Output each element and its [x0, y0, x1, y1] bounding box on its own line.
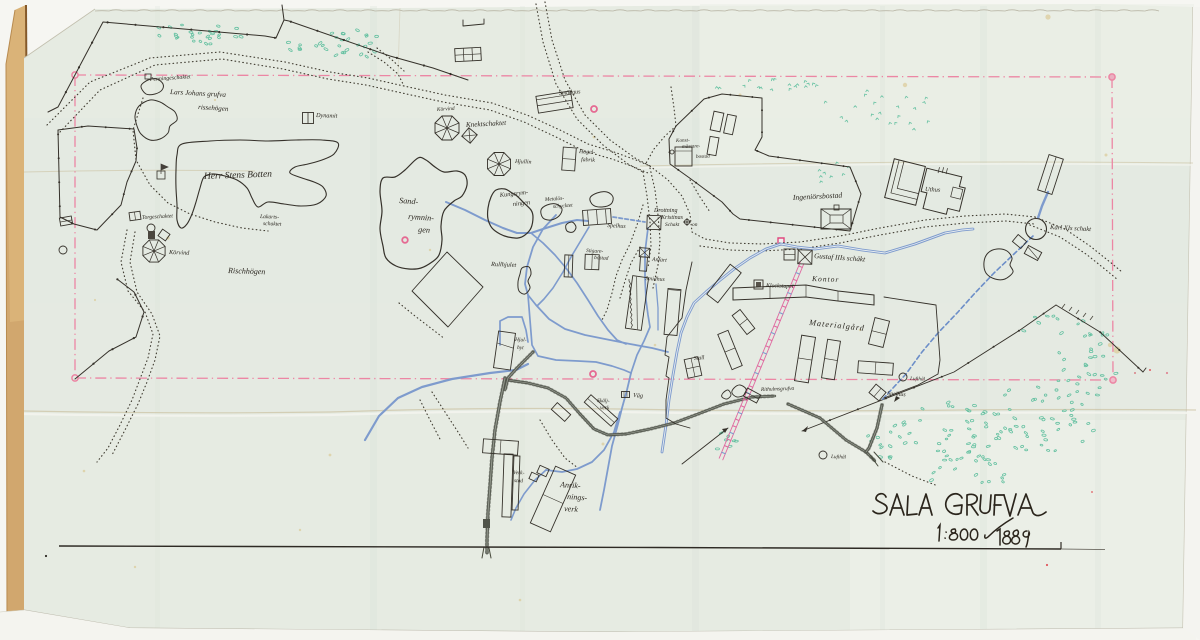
svg-text:Anfart: Anfart: [651, 256, 668, 264]
svg-text:Rischhögen: Rischhögen: [227, 266, 266, 276]
svg-text:Sand-: Sand-: [399, 196, 419, 206]
svg-text:Schakt: Schakt: [665, 222, 680, 228]
svg-text:Dynamit: Dynamit: [315, 112, 338, 120]
svg-text:mästare-: mästare-: [682, 143, 701, 150]
svg-text:hyt: hyt: [517, 345, 524, 351]
svg-text:on: on: [692, 222, 698, 228]
svg-text:verk: verk: [564, 504, 579, 514]
svg-text:Rullhjulet: Rullhjulet: [490, 261, 517, 269]
svg-text:Kontor: Kontor: [811, 274, 840, 284]
svg-text:schaktet: schaktet: [263, 221, 282, 228]
svg-text:Stall: Stall: [694, 355, 705, 362]
svg-text:Lufthål: Lufthål: [830, 453, 847, 461]
svg-text:verk: verk: [600, 405, 610, 411]
svg-text:Lakarts-: Lakarts-: [259, 214, 279, 221]
svg-text:Uthus: Uthus: [925, 186, 941, 194]
svg-text:Hjullin: Hjullin: [514, 159, 532, 166]
svg-text:Verk-: Verk-: [513, 470, 525, 476]
svg-text:bostad: bostad: [594, 255, 609, 262]
svg-text:Drottning: Drottning: [653, 208, 677, 214]
svg-text:Hjul-: Hjul-: [514, 337, 527, 343]
svg-text:Väg: Väg: [633, 392, 643, 400]
svg-text:Kristinas: Kristinas: [660, 215, 684, 221]
svg-text:Lufthål: Lufthål: [909, 375, 926, 383]
svg-text:Spelhus: Spelhus: [607, 223, 627, 230]
svg-text:stad: stad: [514, 478, 523, 484]
svg-text:Klockstapel: Klockstapel: [765, 283, 794, 290]
svg-text:nings-: nings-: [567, 492, 588, 502]
svg-text:fabrik: fabrik: [581, 156, 596, 164]
svg-text:Hagel-: Hagel-: [578, 149, 595, 156]
svg-text:Anrik-: Anrik-: [559, 480, 581, 490]
svg-text:gen: gen: [418, 225, 430, 235]
svg-text:Rithulmsgrufva: Rithulmsgrufva: [760, 385, 795, 393]
svg-text:Körvind: Körvind: [168, 249, 190, 257]
svg-text:bostad: bostad: [696, 154, 710, 160]
svg-text:rymnin-: rymnin-: [408, 212, 435, 223]
svg-text:Smidhus: Smidhus: [645, 276, 666, 283]
svg-text:Stigare-: Stigare-: [586, 248, 604, 255]
svg-text:Skälj-: Skälj-: [597, 398, 610, 404]
